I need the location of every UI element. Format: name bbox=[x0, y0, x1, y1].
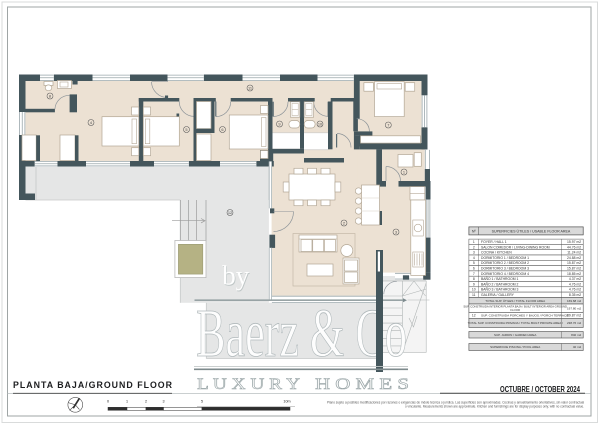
svg-text:8.35 m2: 8.35 m2 bbox=[569, 293, 581, 297]
svg-text:SUP. JARDIN / GARDEN AREA: SUP. JARDIN / GARDEN AREA bbox=[494, 333, 536, 337]
svg-text:Nº: Nº bbox=[472, 229, 477, 233]
svg-text:H O M E S: H O M E S bbox=[315, 376, 409, 393]
svg-text:12: 12 bbox=[228, 210, 232, 215]
svg-text:GALERIA / GALLERY: GALERIA / GALLERY bbox=[481, 293, 515, 297]
svg-text:15.97 m2: 15.97 m2 bbox=[567, 240, 581, 244]
svg-text:7: 7 bbox=[473, 272, 475, 276]
svg-text:DORMITORIO 2 / BEDROOM 2: DORMITORIO 2 / BEDROOM 2 bbox=[481, 261, 529, 265]
svg-text:15.87 m2: 15.87 m2 bbox=[567, 267, 581, 271]
svg-text:3: 3 bbox=[162, 400, 164, 404]
svg-text:197.80 m2: 197.80 m2 bbox=[567, 306, 582, 310]
svg-text:11.24 m2: 11.24 m2 bbox=[567, 251, 581, 255]
svg-text:840 m2: 840 m2 bbox=[571, 333, 581, 337]
svg-text:o vinculante. Measurements sho: o vinculante. Measurements shown are app… bbox=[405, 404, 584, 408]
svg-text:9: 9 bbox=[278, 121, 280, 126]
svg-text:L U X U R Y: L U X U R Y bbox=[197, 376, 301, 393]
svg-text:238.76 m2: 238.76 m2 bbox=[567, 321, 582, 325]
svg-text:0: 0 bbox=[107, 400, 109, 404]
svg-text:COCINA / KITCHEN: COCINA / KITCHEN bbox=[481, 251, 512, 255]
svg-text:SUPERFICIE PISCINA / POOL AREA: SUPERFICIE PISCINA / POOL AREA bbox=[490, 345, 540, 349]
svg-text:TOTAL SUP. ÚTILES / TOTAL FLOO: TOTAL SUP. ÚTILES / TOTAL FLOOR AREA bbox=[485, 298, 545, 303]
svg-text:18.85 m2: 18.85 m2 bbox=[567, 272, 581, 276]
svg-text:4.76 m2: 4.76 m2 bbox=[569, 288, 581, 292]
svg-text:SUPERFICIES ÚTILES / USABLE FL: SUPERFICIES ÚTILES / USABLE FLOOR AREA bbox=[492, 228, 571, 233]
svg-text:1: 1 bbox=[126, 400, 128, 404]
svg-text:OCTUBRE / OCTOBER 2024: OCTUBRE / OCTOBER 2024 bbox=[500, 385, 580, 394]
svg-text:SALON COMEDOR / LIVING-DINING: SALON COMEDOR / LIVING-DINING ROOM bbox=[481, 245, 550, 249]
svg-text:11: 11 bbox=[248, 85, 252, 90]
svg-text:Baerz & Co: Baerz & Co bbox=[196, 295, 407, 371]
svg-text:by: by bbox=[222, 261, 250, 291]
svg-text:7: 7 bbox=[387, 122, 389, 127]
svg-text:SUP. CONSTRUIDA PORCHES Y BAJO: SUP. CONSTRUIDA PORCHES Y BAJOS / PORCH … bbox=[481, 314, 568, 318]
svg-text:4.37 m2: 4.37 m2 bbox=[569, 277, 581, 281]
svg-text:DORMITORIO 3 / BEDROOM 3: DORMITORIO 3 / BEDROOM 3 bbox=[481, 267, 529, 271]
svg-text:6: 6 bbox=[221, 127, 223, 132]
svg-text:BAÑO 3 / BATHROOM 3: BAÑO 3 / BATHROOM 3 bbox=[481, 287, 519, 292]
svg-text:FOYER / HALL 1: FOYER / HALL 1 bbox=[481, 240, 507, 244]
svg-text:40 m2: 40 m2 bbox=[573, 345, 582, 349]
svg-text:PLANTA BAJA/GROUND FLOOR: PLANTA BAJA/GROUND FLOOR bbox=[13, 380, 173, 390]
svg-text:2: 2 bbox=[343, 220, 345, 225]
svg-text:12: 12 bbox=[472, 314, 476, 318]
svg-text:3: 3 bbox=[473, 251, 475, 255]
svg-text:BAÑO 1 / BATHROOM 1: BAÑO 1 / BATHROOM 1 bbox=[481, 276, 519, 281]
svg-text:44.76 m2: 44.76 m2 bbox=[567, 245, 581, 249]
svg-text:5: 5 bbox=[473, 261, 475, 265]
svg-text:9: 9 bbox=[473, 282, 475, 286]
svg-text:2: 2 bbox=[145, 400, 147, 404]
svg-text:15.87 m2: 15.87 m2 bbox=[567, 261, 581, 265]
svg-text:11: 11 bbox=[472, 293, 476, 297]
svg-text:1: 1 bbox=[473, 240, 475, 244]
svg-text:5: 5 bbox=[185, 127, 187, 132]
svg-text:BAÑO 2 / BATHROOM 2: BAÑO 2 / BATHROOM 2 bbox=[481, 281, 519, 286]
svg-text:5: 5 bbox=[201, 400, 203, 404]
svg-text:DORMITORIO 1 / BEDROOM 1: DORMITORIO 1 / BEDROOM 1 bbox=[481, 256, 529, 260]
svg-text:TOTAL SUP. CONSTRUIDA PRIVADA: TOTAL SUP. CONSTRUIDA PRIVADA / TOTAL BU… bbox=[468, 321, 563, 325]
svg-text:89.87 m2: 89.87 m2 bbox=[567, 314, 581, 318]
svg-text:169.68 m2: 169.68 m2 bbox=[567, 299, 582, 303]
svg-text:8: 8 bbox=[473, 277, 475, 281]
svg-text:8: 8 bbox=[49, 93, 51, 98]
svg-text:FLOOR: FLOOR bbox=[510, 308, 520, 312]
svg-text:10: 10 bbox=[472, 288, 476, 292]
svg-text:DORMITORIO 4 / BEDROOM 4: DORMITORIO 4 / BEDROOM 4 bbox=[481, 272, 529, 276]
svg-text:3: 3 bbox=[395, 229, 397, 234]
svg-text:6: 6 bbox=[473, 267, 475, 271]
svg-text:24.88 m2: 24.88 m2 bbox=[567, 256, 581, 260]
svg-text:1: 1 bbox=[403, 169, 405, 174]
svg-text:4.76 m2: 4.76 m2 bbox=[569, 282, 581, 286]
svg-text:4: 4 bbox=[473, 256, 475, 260]
svg-text:2: 2 bbox=[473, 245, 475, 249]
svg-text:10m: 10m bbox=[283, 400, 290, 404]
